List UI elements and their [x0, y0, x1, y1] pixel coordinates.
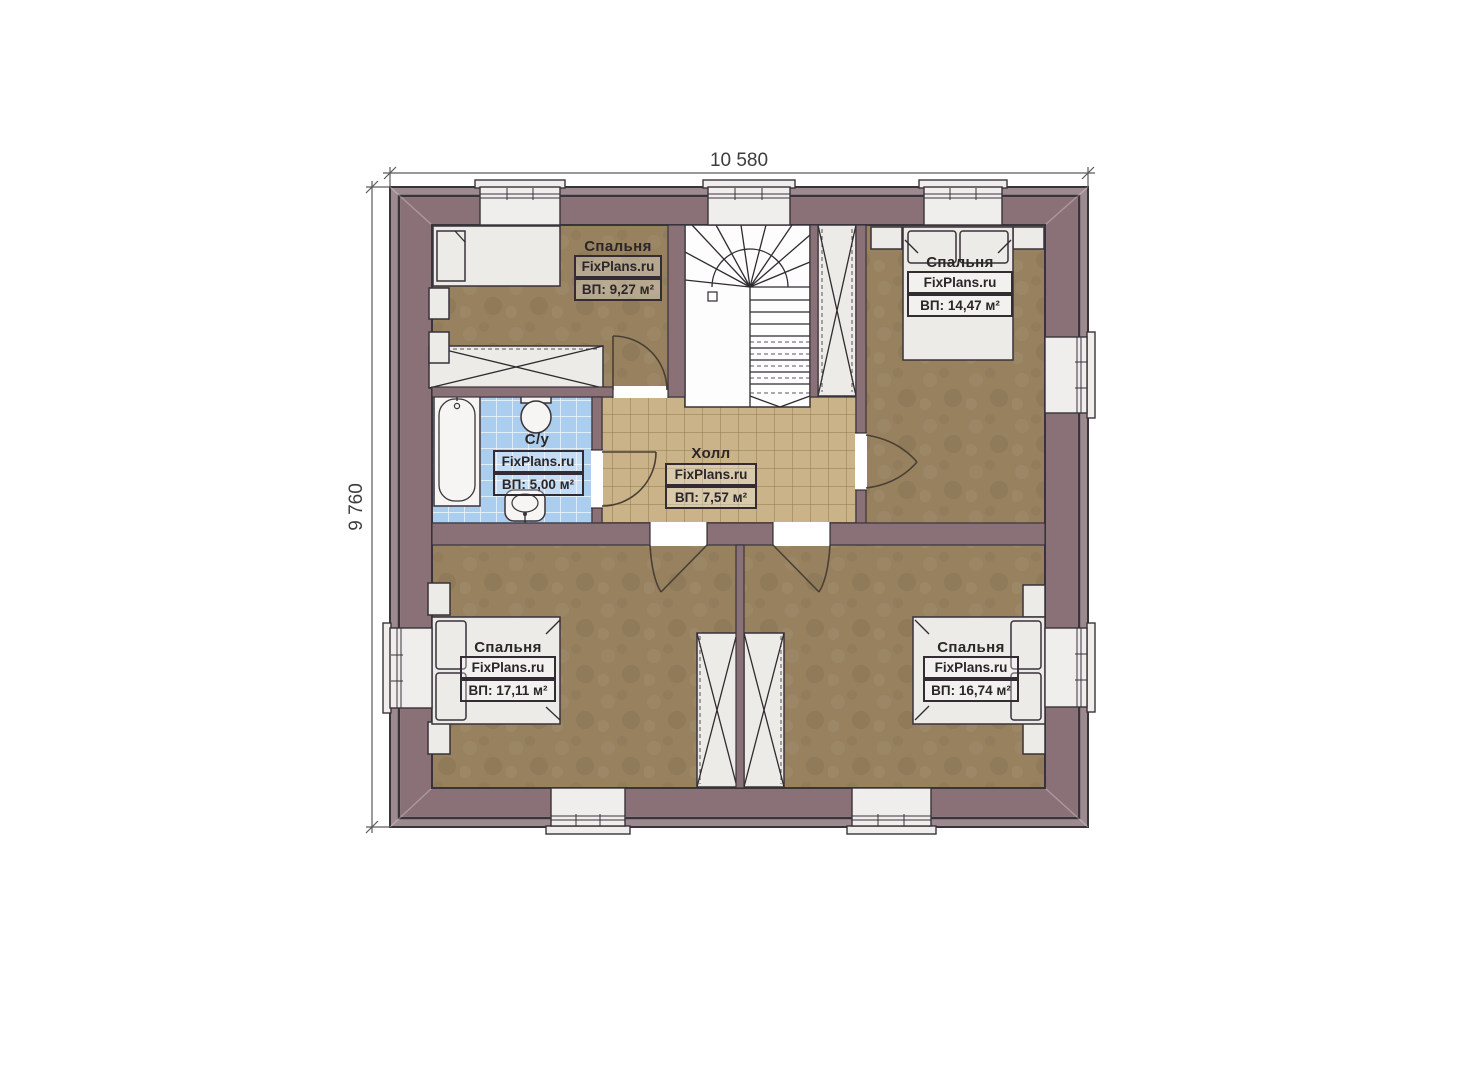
area-text: ВП: 16,74 м² [931, 683, 1011, 698]
room-name: Спальня [926, 254, 994, 271]
room-name: С/у [525, 431, 550, 448]
window-left [383, 623, 432, 713]
room-name: Спальня [937, 639, 1005, 656]
wall-bath-east-upper [592, 397, 602, 450]
brand-text: FixPlans.ru [582, 259, 655, 274]
area-text: ВП: 14,47 м² [920, 298, 1000, 313]
room-name: Холл [691, 445, 730, 462]
nightstand [429, 332, 449, 363]
window-right-1 [1045, 332, 1095, 418]
toilet [521, 394, 551, 433]
brand-text: FixPlans.ru [472, 660, 545, 675]
wall-hall-south-left [432, 523, 650, 545]
nightstand [1013, 227, 1044, 249]
nightstand [1023, 585, 1045, 617]
label-bedroom-tl: Спальня FixPlans.ru ВП: 9,27 м² [575, 238, 661, 300]
window-top-3 [919, 180, 1007, 225]
nightstand [428, 722, 450, 754]
window-bottom-1 [546, 788, 630, 834]
nightstand [429, 288, 449, 319]
wall-bath-north [432, 387, 613, 397]
brand-text: FixPlans.ru [935, 660, 1008, 675]
brand-text: FixPlans.ru [675, 467, 748, 482]
wall-hall-south-right [830, 523, 1045, 545]
closet-by-stairs [818, 225, 856, 396]
window-right-2 [1045, 623, 1095, 712]
area-text: ВП: 5,00 м² [502, 477, 575, 492]
stairwell [685, 225, 810, 407]
dimension-left: 9 760 [346, 181, 390, 833]
wall-stairs-east [810, 225, 818, 397]
area-text: ВП: 7,57 м² [675, 490, 748, 505]
label-bedroom-br: Спальня FixPlans.ru ВП: 16,74 м² [924, 639, 1018, 701]
bathtub [434, 394, 480, 506]
area-text: ВП: 9,27 м² [582, 282, 655, 297]
nightstand [871, 227, 902, 249]
wall-stairs-west [668, 225, 685, 397]
floor-plan-drawing: Спальня FixPlans.ru ВП: 9,27 м² Спальня … [0, 0, 1473, 1080]
nightstand [1023, 722, 1045, 754]
pillow [437, 231, 465, 281]
brand-text: FixPlans.ru [502, 454, 575, 469]
window-bottom-2 [847, 788, 936, 834]
dimension-width-label: 10 580 [710, 150, 768, 171]
area-text: ВП: 17,11 м² [469, 683, 548, 698]
staircase [685, 225, 810, 407]
room-name: Спальня [584, 238, 652, 255]
label-bedroom-bl: Спальня FixPlans.ru ВП: 17,11 м² [461, 639, 555, 701]
wall-bath-east-lower [592, 508, 602, 523]
dimension-height-label: 9 760 [346, 483, 367, 531]
brand-text: FixPlans.ru [924, 275, 997, 290]
wall-hall-south-mid [707, 523, 773, 545]
room-name: Спальня [474, 639, 542, 656]
floor-plan-page: Спальня FixPlans.ru ВП: 9,27 м² Спальня … [0, 0, 1473, 1080]
wall-bedrooms-divider [736, 545, 744, 788]
wall-hall-east-upper [856, 225, 866, 433]
window-top-2 [703, 180, 795, 225]
window-top-1 [475, 180, 565, 225]
nightstand [428, 583, 450, 615]
